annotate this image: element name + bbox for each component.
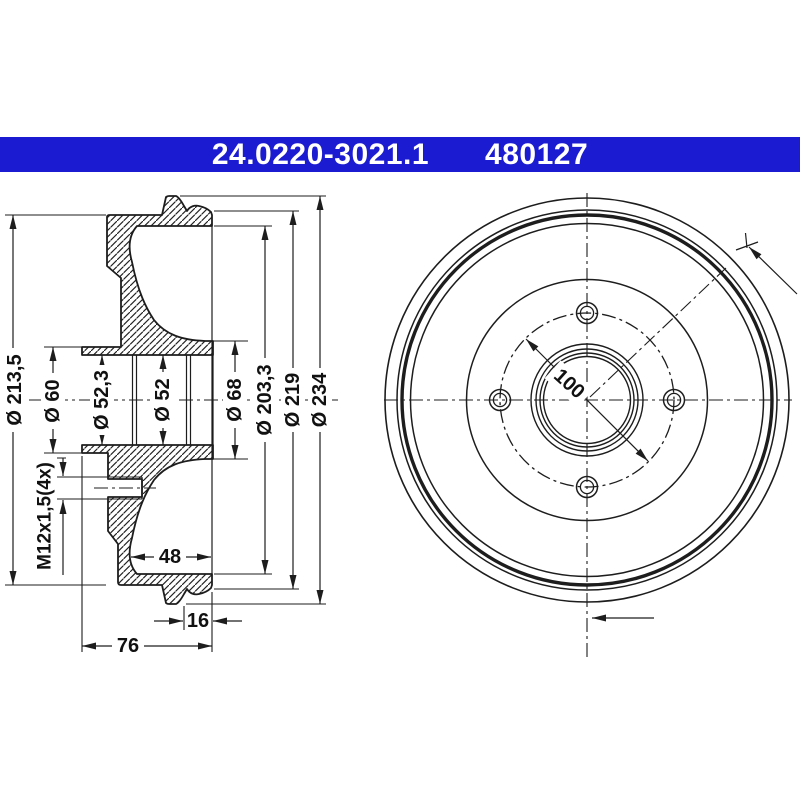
section-top-half: [82, 196, 213, 355]
dim-label-diameter-219: Ø 219: [282, 373, 304, 427]
dim-thread-m12: M12x1,5(4x): [33, 457, 66, 575]
dim-diameter-68: Ø 68: [213, 341, 248, 459]
dim-label-diameter-234: Ø 234: [309, 372, 331, 427]
dim-label-diameter-52-3: Ø 52,3: [91, 370, 113, 430]
dim-label-depth-16: 16: [187, 610, 209, 632]
front-view: 100: [384, 193, 797, 658]
dim-label-diameter-60: Ø 60: [42, 379, 64, 422]
edge-leader-arrow: [736, 233, 797, 294]
dim-depth-48: 48: [131, 545, 211, 569]
brake-drum-technical-drawing: 24.0220-3021.1 480127: [0, 0, 800, 800]
dim-label-diameter-203-3: Ø 203,3: [254, 364, 276, 435]
dim-diameter-52-3: Ø 52,3: [90, 355, 114, 445]
section-view: Ø 213,5 Ø 60 Ø 52,3: [3, 196, 338, 658]
drawing-canvas: Ø 213,5 Ø 60 Ø 52,3: [0, 0, 800, 800]
dim-diameter-52: Ø 52: [151, 355, 175, 445]
dim-label-diameter-68: Ø 68: [224, 378, 246, 421]
dim-diameter-60: Ø 60: [41, 347, 82, 453]
dim-depth-16: 16: [154, 606, 242, 632]
dim-label-diameter-52: Ø 52: [152, 378, 174, 421]
dim-label-depth-76: 76: [117, 635, 139, 657]
dim-label-diameter-213-5: Ø 213,5: [4, 354, 26, 425]
dim-label-depth-48: 48: [159, 546, 181, 568]
section-bottom-half: [82, 445, 213, 604]
dim-label-thread: M12x1,5(4x): [35, 462, 56, 570]
